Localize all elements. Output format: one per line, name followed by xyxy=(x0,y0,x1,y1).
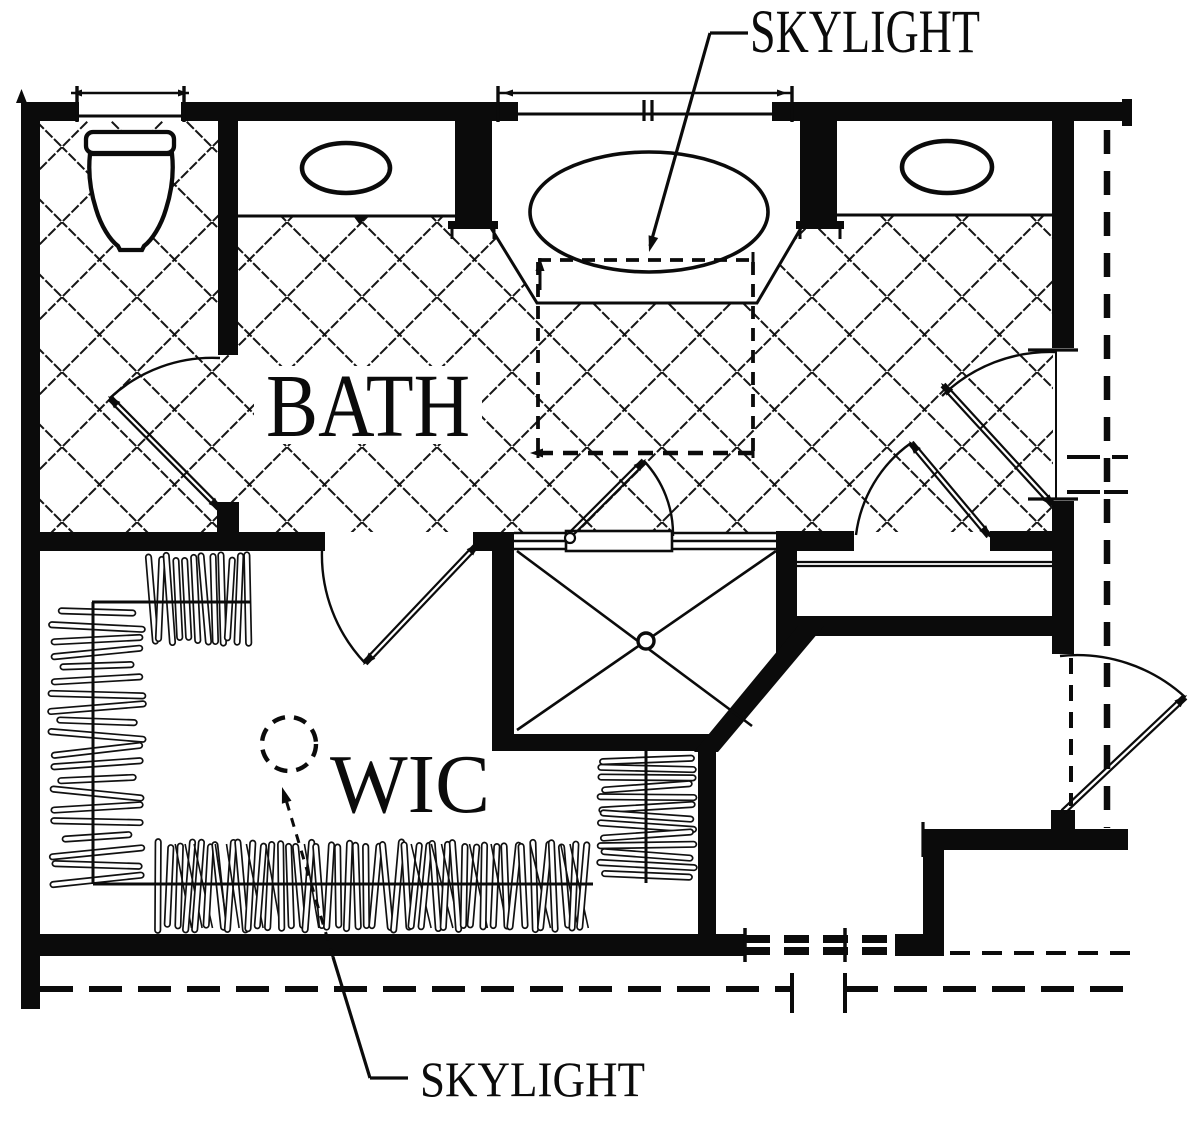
svg-text:SKYLIGHT: SKYLIGHT xyxy=(750,0,980,66)
svg-text:BATH: BATH xyxy=(266,357,470,456)
svg-text:WIC: WIC xyxy=(330,738,490,831)
svg-text:SKYLIGHT: SKYLIGHT xyxy=(420,1051,645,1107)
